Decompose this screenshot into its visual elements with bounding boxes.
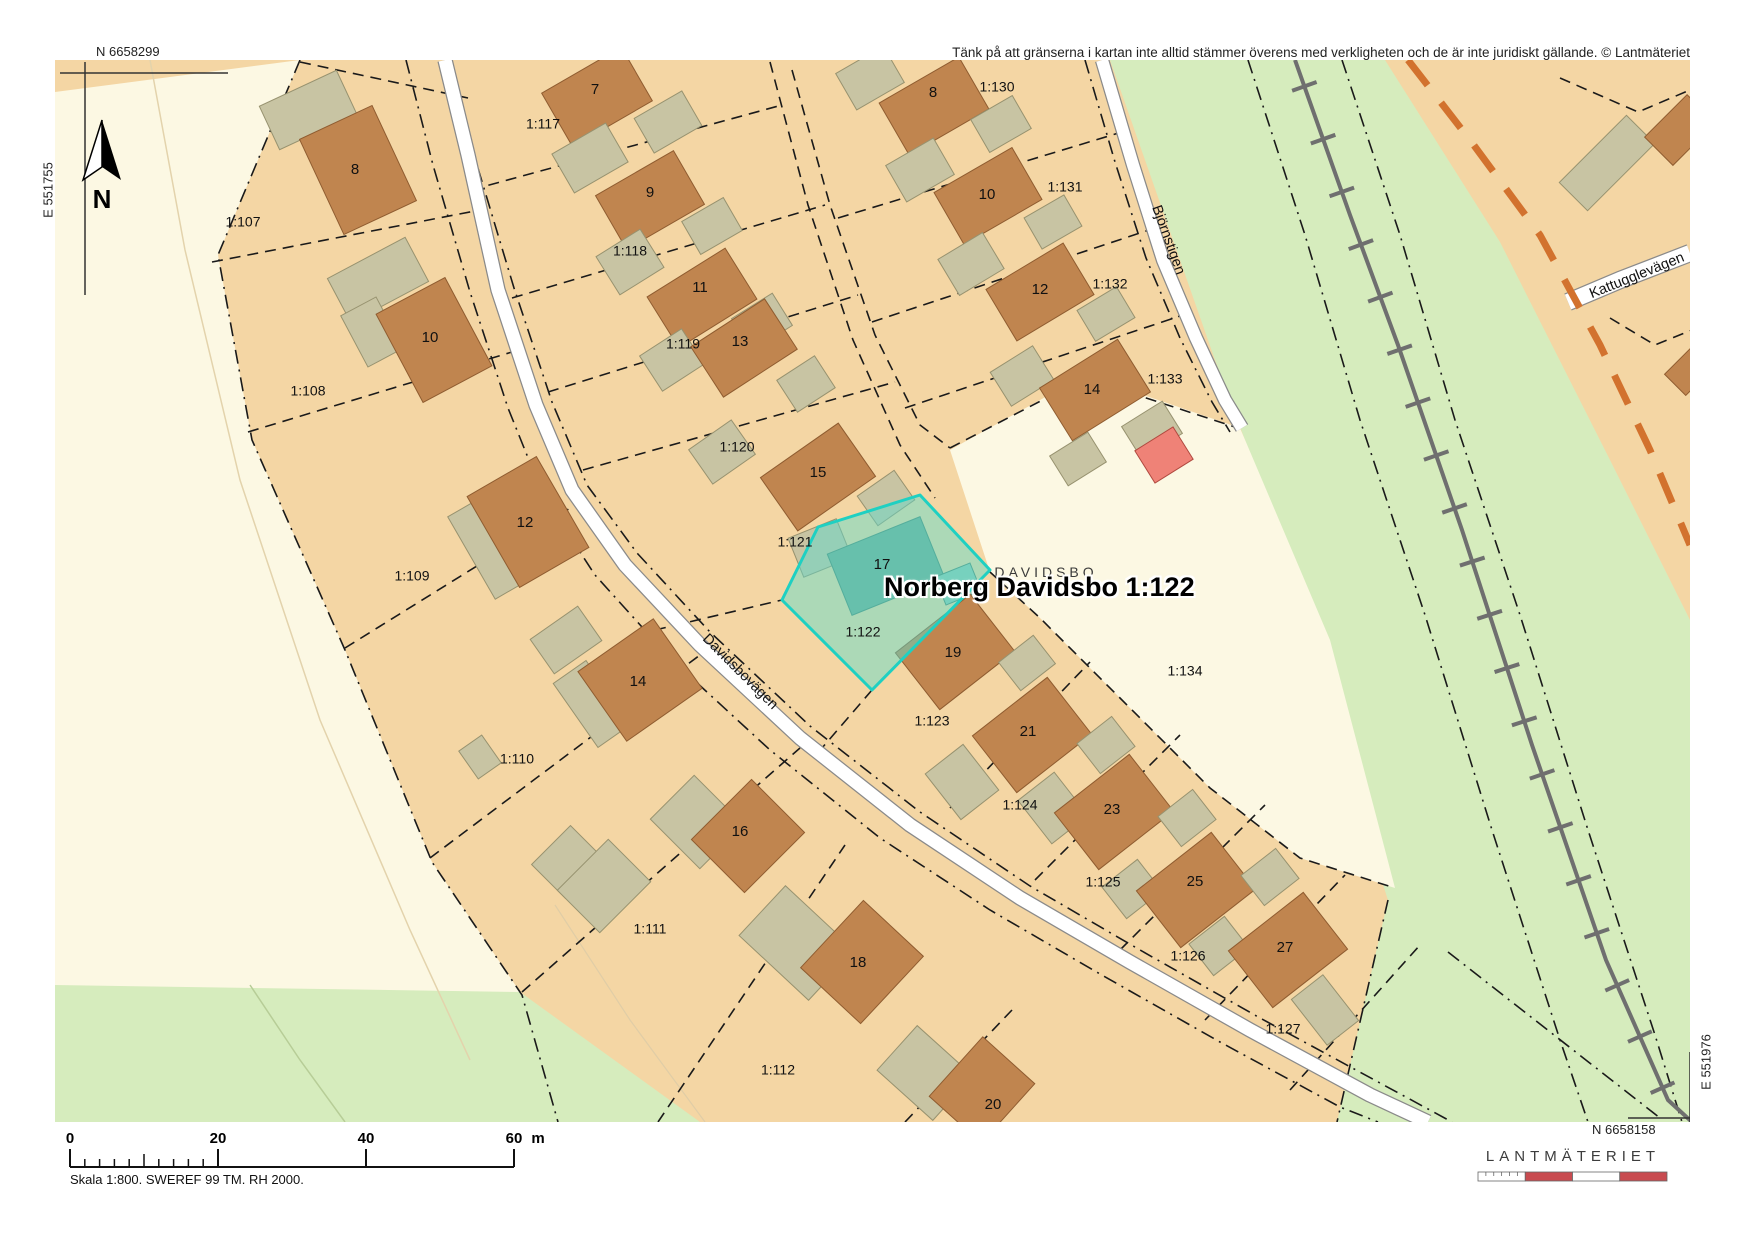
scale-tick-label: 60 xyxy=(506,1130,523,1147)
scale-unit-label: m xyxy=(531,1130,544,1147)
parcel-number-label: 1:123 xyxy=(914,713,949,729)
house-number-label: 8 xyxy=(351,161,359,178)
parcel-number-label: 1:125 xyxy=(1085,874,1120,890)
disclaimer-text: Tänk på att gränserna i kartan inte allt… xyxy=(952,45,1690,60)
parcel-number-label: 1:127 xyxy=(1265,1021,1300,1037)
parcel-number-label: 1:118 xyxy=(613,243,647,259)
lantmateriet-logo-bar xyxy=(1478,1172,1667,1181)
house-number-label: 16 xyxy=(732,823,749,840)
parcel-number-label: 1:134 xyxy=(1167,663,1202,679)
parcel-number-label: 1:109 xyxy=(394,568,429,584)
house-number-label: 18 xyxy=(850,954,867,971)
house-number-label: 10 xyxy=(979,186,996,203)
parcel-number-label: 1:121 xyxy=(777,534,812,550)
house-number-label: 9 xyxy=(646,184,654,201)
parcel-number-label: 1:124 xyxy=(1002,797,1037,813)
scale-tick-label: 0 xyxy=(66,1130,74,1147)
parcel-number-label: 1:108 xyxy=(290,383,325,399)
parcel-number-label: 1:131 xyxy=(1047,179,1082,195)
coordinate-label-north-topleft: N 6658299 xyxy=(96,44,160,59)
house-number-label: 10 xyxy=(422,329,439,346)
coordinate-label-north-bottomright: N 6658158 xyxy=(1592,1122,1656,1137)
house-number-label: 8 xyxy=(929,84,937,101)
parcel-number-label: 1:122 xyxy=(845,624,880,640)
house-number-label: 11 xyxy=(692,279,708,296)
parcel-number-label: 1:119 xyxy=(666,336,700,352)
coordinate-label-east-topleft: E 551755 xyxy=(41,162,56,218)
house-number-label: 12 xyxy=(1032,281,1049,298)
lantmateriet-logo-text: LANTMÄTERIET xyxy=(1478,1148,1668,1165)
map-canvas: 1:1071:1081:1091:1101:1111:1121:1171:118… xyxy=(0,0,1754,1241)
map-export-page: 1:1071:1081:1091:1101:1111:1121:1171:118… xyxy=(0,0,1754,1241)
house-number-label: 27 xyxy=(1277,939,1294,956)
house-number-label: 7 xyxy=(591,81,599,98)
scale-tick-label: 20 xyxy=(210,1130,227,1147)
parcel-number-label: 1:110 xyxy=(500,751,534,767)
north-label: N xyxy=(93,184,112,214)
coordinate-label-east-bottomright: E 551976 xyxy=(1699,1034,1714,1090)
house-number-label: 15 xyxy=(810,464,827,481)
parcel-number-label: 1:107 xyxy=(225,214,260,230)
parcel-number-label: 1:111 xyxy=(634,921,667,937)
house-number-label: 17 xyxy=(874,556,891,573)
parcel-number-label: 1:130 xyxy=(979,79,1014,95)
scale-tick-label: 40 xyxy=(358,1130,375,1147)
parcel-number-label: 1:112 xyxy=(761,1062,795,1078)
house-number-label: 12 xyxy=(517,514,534,531)
house-number-label: 20 xyxy=(985,1096,1002,1113)
parcel-number-label: 1:126 xyxy=(1170,948,1205,964)
house-number-label: 21 xyxy=(1020,723,1037,740)
house-number-label: 19 xyxy=(945,644,962,661)
scale-caption: Skala 1:800. SWEREF 99 TM. RH 2000. xyxy=(70,1172,304,1187)
parcel-number-label: 1:120 xyxy=(719,439,754,455)
parcel-number-label: 1:117 xyxy=(526,116,560,132)
house-number-label: 14 xyxy=(1084,381,1101,398)
parcel-number-label: 1:133 xyxy=(1147,371,1182,387)
parcel-number-label: 1:132 xyxy=(1092,276,1127,292)
highlighted-parcel-label: Norberg Davidsbo 1:122 xyxy=(884,572,1195,603)
house-number-label: 13 xyxy=(732,333,749,350)
house-number-label: 14 xyxy=(630,673,647,690)
house-number-label: 23 xyxy=(1104,801,1121,818)
house-number-label: 25 xyxy=(1187,873,1204,890)
scale-bar: 0204060m xyxy=(66,1130,545,1167)
